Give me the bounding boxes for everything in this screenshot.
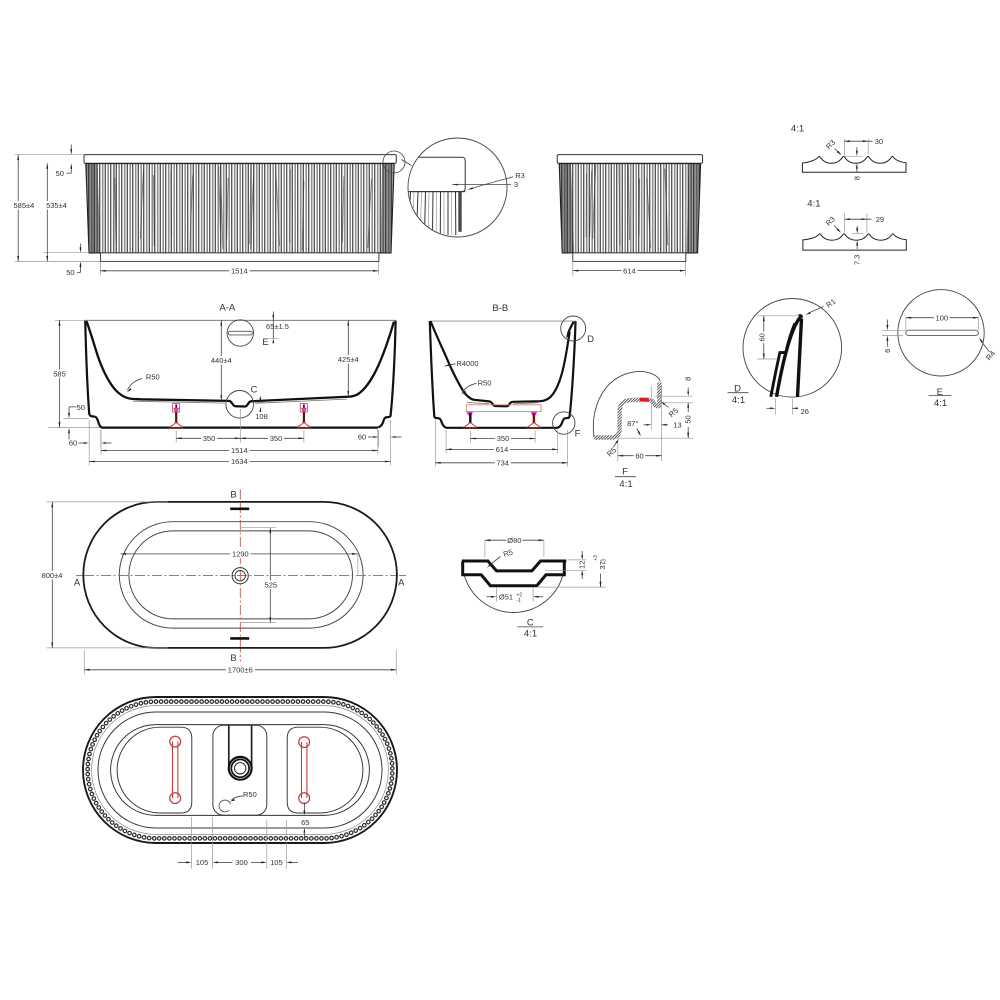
svg-text:300: 300 — [235, 858, 248, 867]
svg-text:F: F — [575, 429, 581, 440]
svg-text:50: 50 — [56, 169, 64, 178]
svg-text:12: 12 — [578, 561, 587, 569]
svg-text:614: 614 — [623, 266, 636, 275]
svg-text:800±4: 800±4 — [42, 571, 63, 580]
svg-text:-1: -1 — [517, 598, 522, 604]
svg-text:65: 65 — [301, 818, 309, 827]
svg-text:734: 734 — [496, 458, 509, 467]
svg-text:1700±6: 1700±6 — [228, 666, 253, 675]
svg-text:C: C — [250, 385, 257, 396]
svg-text:8: 8 — [852, 176, 861, 180]
svg-text:108: 108 — [255, 412, 268, 421]
svg-text:R50: R50 — [478, 379, 492, 388]
svg-text:A: A — [74, 578, 81, 589]
svg-text:105: 105 — [196, 858, 209, 867]
svg-text:3: 3 — [514, 180, 518, 189]
svg-text:1514: 1514 — [231, 266, 248, 275]
svg-text:A: A — [398, 578, 405, 589]
svg-text:30: 30 — [875, 137, 883, 146]
svg-text:E: E — [262, 337, 268, 348]
svg-text:26: 26 — [801, 407, 809, 416]
svg-text:1514: 1514 — [231, 446, 248, 455]
svg-text:4:1: 4:1 — [791, 124, 804, 135]
svg-text:535±4: 535±4 — [46, 201, 67, 210]
svg-text:7.3: 7.3 — [853, 255, 862, 265]
svg-text:60: 60 — [358, 433, 366, 442]
svg-text:100: 100 — [936, 313, 949, 322]
svg-text:4:1: 4:1 — [807, 199, 820, 210]
svg-text:1290: 1290 — [232, 550, 249, 559]
svg-text:350: 350 — [497, 434, 510, 443]
svg-text:105: 105 — [270, 858, 283, 867]
svg-text:4:1: 4:1 — [619, 479, 632, 490]
svg-text:614: 614 — [496, 445, 509, 454]
svg-text:B: B — [230, 653, 236, 664]
svg-text:F: F — [622, 466, 628, 477]
svg-text:E: E — [937, 387, 943, 398]
svg-text:Ø80: Ø80 — [507, 536, 521, 545]
svg-text:525: 525 — [265, 580, 278, 589]
svg-text:425±4: 425±4 — [338, 355, 359, 364]
svg-text:4:1: 4:1 — [732, 395, 745, 406]
svg-text:Ø51: Ø51 — [499, 592, 513, 601]
svg-text:585: 585 — [53, 370, 66, 379]
svg-text:4:1: 4:1 — [524, 629, 537, 640]
svg-text:R3: R3 — [515, 171, 525, 180]
svg-text:29: 29 — [876, 215, 884, 224]
svg-text:R50: R50 — [243, 790, 257, 799]
svg-text:440±4: 440±4 — [211, 356, 232, 365]
svg-text:60: 60 — [69, 438, 77, 447]
svg-text:+3: +3 — [593, 555, 599, 561]
svg-text:4:1: 4:1 — [934, 398, 947, 409]
svg-text:350: 350 — [270, 434, 283, 443]
svg-text:B-B: B-B — [492, 303, 508, 314]
svg-text:60: 60 — [757, 333, 766, 341]
svg-text:-3: -3 — [602, 559, 608, 564]
svg-text:50: 50 — [77, 403, 85, 412]
svg-text:6: 6 — [883, 349, 892, 353]
svg-text:65±1.5: 65±1.5 — [266, 322, 289, 331]
svg-text:60: 60 — [635, 451, 643, 460]
svg-text:B: B — [230, 490, 236, 501]
svg-text:A-A: A-A — [219, 303, 236, 314]
svg-text:D: D — [587, 334, 594, 345]
svg-text:585±4: 585±4 — [13, 201, 34, 210]
svg-text:R50: R50 — [146, 373, 160, 382]
svg-text:50: 50 — [684, 415, 693, 423]
svg-text:R4000: R4000 — [456, 359, 478, 368]
svg-text:13: 13 — [673, 421, 681, 430]
svg-text:1634: 1634 — [231, 457, 248, 466]
svg-text:50: 50 — [66, 268, 74, 277]
svg-text:87°: 87° — [627, 419, 638, 428]
svg-text:8: 8 — [684, 377, 693, 381]
svg-text:350: 350 — [203, 434, 216, 443]
